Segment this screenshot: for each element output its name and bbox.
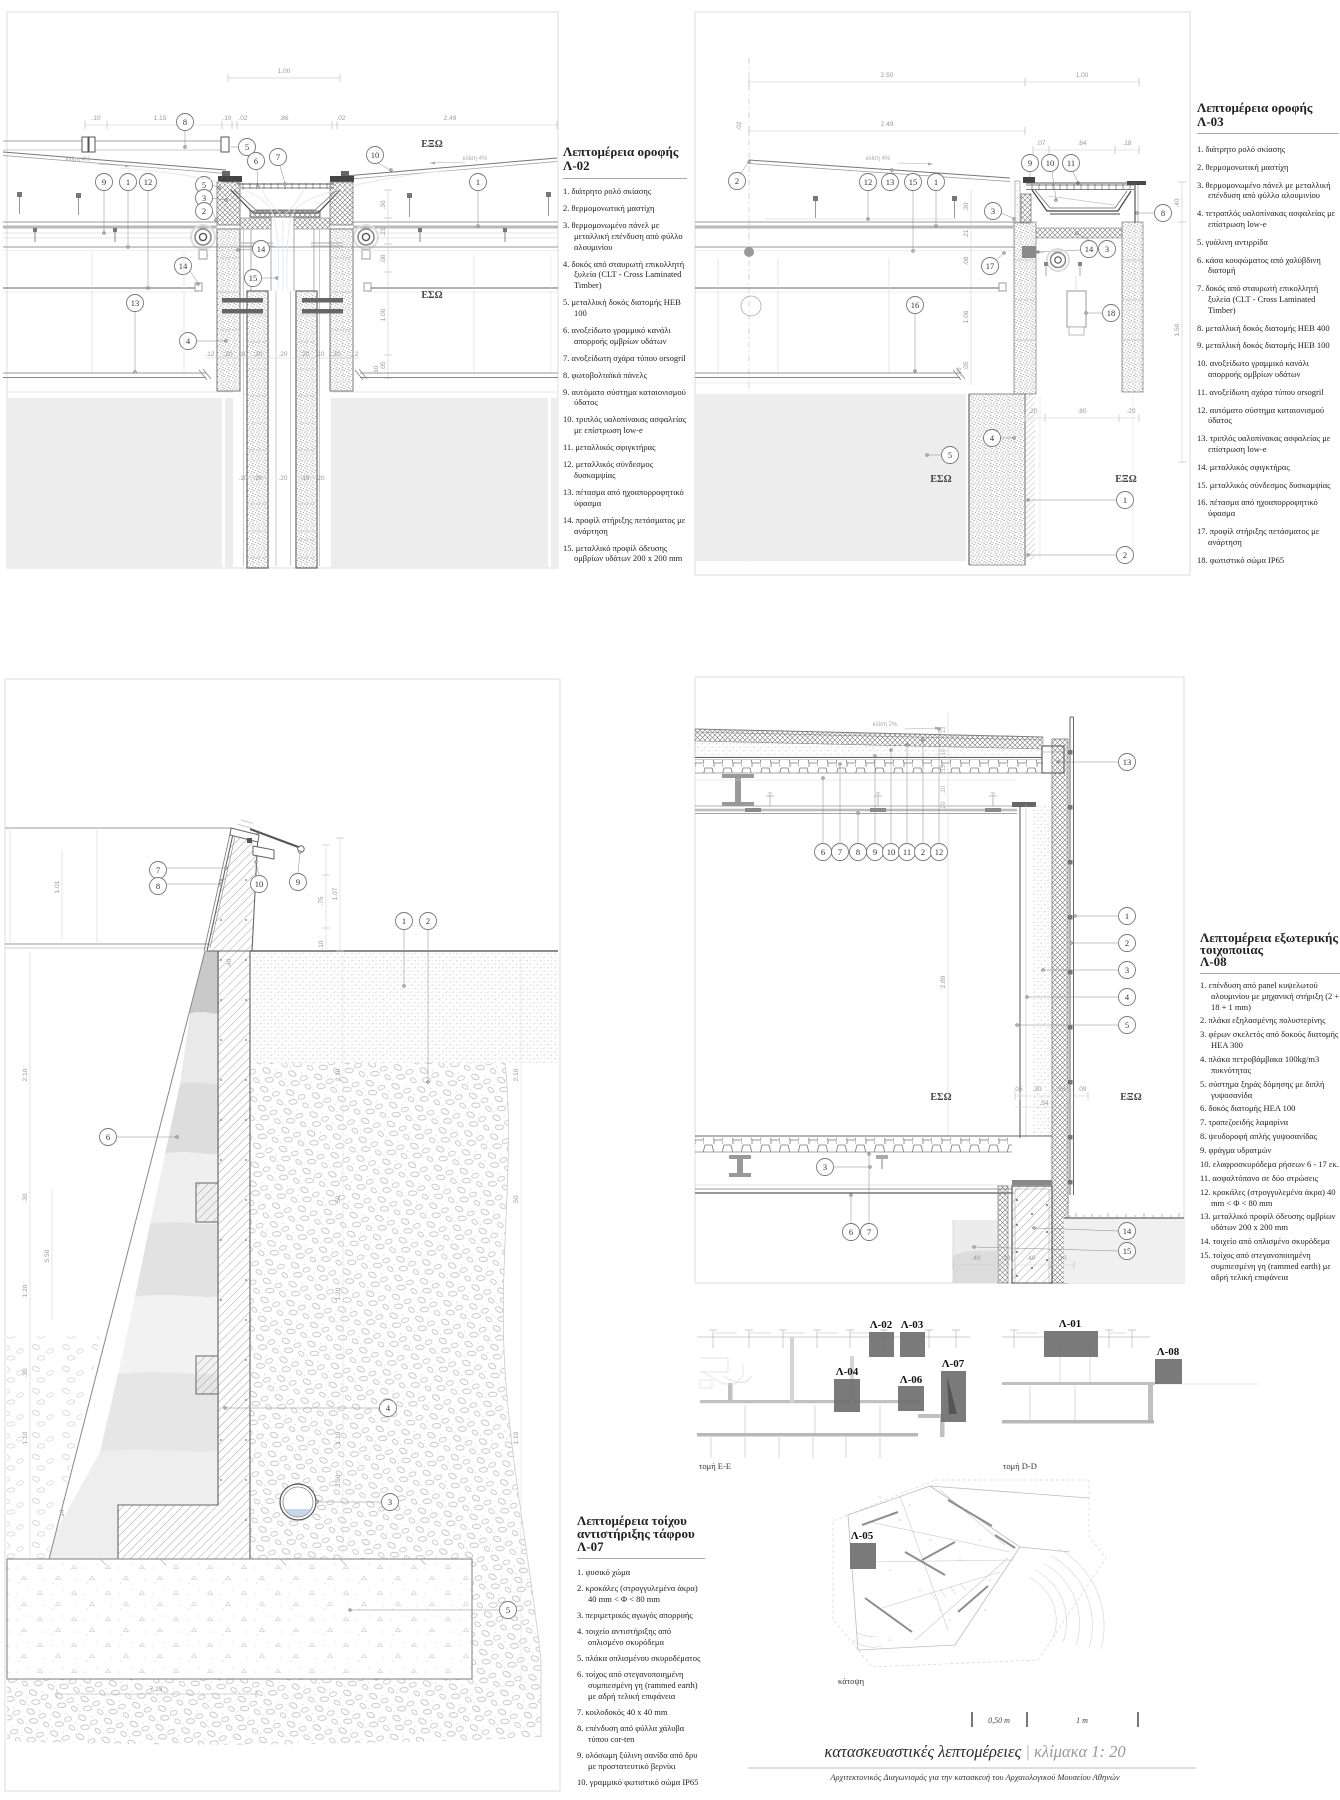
svg-text:13: 13 xyxy=(886,177,895,187)
svg-text:1.50: 1.50 xyxy=(1174,323,1181,336)
svg-text:.30: .30 xyxy=(22,1193,29,1202)
svg-text:9: 9 xyxy=(296,877,300,887)
svg-text:9: 9 xyxy=(102,177,106,187)
svg-text:.40: .40 xyxy=(1174,198,1181,207)
svg-text:15: 15 xyxy=(249,273,258,283)
svg-text:.75: .75 xyxy=(318,896,325,905)
svg-text:Λ-07: Λ-07 xyxy=(942,1358,965,1370)
svg-text:Λ-02: Λ-02 xyxy=(870,1319,893,1331)
svg-text:.07: .07 xyxy=(1036,140,1045,147)
svg-text:1.06: 1.06 xyxy=(380,308,387,321)
svg-text:12: 12 xyxy=(935,847,944,857)
svg-text:.20: .20 xyxy=(1126,408,1135,415)
svg-text:.20: .20 xyxy=(253,475,262,482)
svg-text:1.06: 1.06 xyxy=(963,310,970,323)
svg-text:ΕΞΩ: ΕΞΩ xyxy=(1115,474,1136,485)
svg-text:Λ-04: Λ-04 xyxy=(836,1366,859,1378)
svg-text:κλίση 2%: κλίση 2% xyxy=(873,722,898,728)
svg-text:.20: .20 xyxy=(1028,408,1037,415)
svg-text:12: 12 xyxy=(144,177,153,187)
svg-text:6: 6 xyxy=(849,1227,853,1237)
svg-text:.02: .02 xyxy=(336,115,345,122)
svg-text:.86: .86 xyxy=(279,115,288,122)
svg-text:κλίση 4%: κλίση 4% xyxy=(866,156,891,162)
svg-text:0,50 m: 0,50 m xyxy=(988,1716,1010,1725)
svg-text:2.49: 2.49 xyxy=(881,121,894,128)
svg-text:.21: .21 xyxy=(380,227,387,236)
svg-text:1.00: 1.00 xyxy=(1076,72,1089,79)
svg-text:.12: .12 xyxy=(349,351,358,358)
svg-text:18: 18 xyxy=(1107,308,1116,318)
svg-text:15: 15 xyxy=(1123,1246,1132,1256)
svg-text:9: 9 xyxy=(873,847,877,857)
svg-text:3: 3 xyxy=(1125,965,1129,975)
svg-text:.50: .50 xyxy=(513,1195,520,1204)
svg-text:.20: .20 xyxy=(223,351,232,358)
svg-text:.10: .10 xyxy=(222,115,231,122)
svg-text:1.20: 1.20 xyxy=(22,1284,29,1297)
svg-text:.30: .30 xyxy=(380,200,387,209)
svg-text:.20: .20 xyxy=(278,475,287,482)
svg-text:.21: .21 xyxy=(963,229,970,238)
svg-text:.20: .20 xyxy=(300,351,309,358)
svg-text:.20: .20 xyxy=(278,351,287,358)
svg-text:2.89: 2.89 xyxy=(940,975,947,988)
svg-text:7: 7 xyxy=(867,1227,871,1237)
svg-text:14: 14 xyxy=(257,244,266,254)
svg-text:.10: .10 xyxy=(1056,1086,1065,1093)
svg-text:14: 14 xyxy=(1085,244,1094,254)
svg-text:.02: .02 xyxy=(238,115,247,122)
svg-text:2.50: 2.50 xyxy=(881,72,894,79)
svg-text:14: 14 xyxy=(179,261,188,271)
svg-text:3.60: 3.60 xyxy=(335,1474,342,1487)
svg-text:2.10: 2.10 xyxy=(513,1068,520,1081)
svg-text:.80: .80 xyxy=(1077,408,1086,415)
svg-text:2: 2 xyxy=(1123,550,1127,560)
svg-text:τομή D-D: τομή D-D xyxy=(1003,1461,1037,1471)
svg-text:6: 6 xyxy=(821,847,825,857)
svg-text:Λ-08: Λ-08 xyxy=(1157,1346,1180,1358)
svg-text:10: 10 xyxy=(255,879,264,889)
svg-text:2: 2 xyxy=(1125,938,1129,948)
svg-text:.10: .10 xyxy=(318,940,325,949)
svg-text:.50: .50 xyxy=(335,1195,342,1204)
svg-text:5.50: 5.50 xyxy=(44,1249,51,1262)
svg-text:6: 6 xyxy=(254,156,258,166)
svg-text:10: 10 xyxy=(887,847,896,857)
svg-text:.30: .30 xyxy=(963,202,970,211)
svg-text:1: 1 xyxy=(934,177,938,187)
svg-text:.02: .02 xyxy=(736,121,743,130)
svg-text:.20: .20 xyxy=(315,475,324,482)
svg-text:5: 5 xyxy=(506,1605,510,1615)
svg-text:ΕΣΩ: ΕΣΩ xyxy=(930,1092,951,1103)
svg-text:.20: .20 xyxy=(253,351,262,358)
svg-text:κάτοψη: κάτοψη xyxy=(838,1676,864,1686)
svg-text:3: 3 xyxy=(991,206,995,216)
svg-text:1: 1 xyxy=(476,177,480,187)
svg-text:11: 11 xyxy=(1067,158,1075,168)
svg-text:7: 7 xyxy=(276,152,280,162)
svg-text:3: 3 xyxy=(1105,244,1109,254)
svg-text:.40: .40 xyxy=(971,1255,980,1262)
svg-text:.20: .20 xyxy=(331,351,340,358)
svg-text:.30: .30 xyxy=(1032,1086,1041,1093)
svg-text:3: 3 xyxy=(202,193,206,203)
svg-text:7.25: 7.25 xyxy=(150,1686,163,1693)
svg-text:.05: .05 xyxy=(380,361,387,370)
svg-text:9: 9 xyxy=(1028,158,1032,168)
svg-text:1: 1 xyxy=(1123,495,1127,505)
svg-text:.08: .08 xyxy=(963,256,970,265)
svg-text:1.10: 1.10 xyxy=(513,1431,520,1444)
svg-text:.84: .84 xyxy=(1077,140,1086,147)
svg-text:.14: .14 xyxy=(59,1509,66,1518)
svg-text:.05: .05 xyxy=(1013,1086,1022,1093)
svg-text:7: 7 xyxy=(156,865,160,875)
svg-text:.18: .18 xyxy=(1122,140,1131,147)
svg-text:.09: .09 xyxy=(1077,1086,1086,1093)
svg-text:.10: .10 xyxy=(941,748,947,757)
svg-text:.10: .10 xyxy=(238,351,247,358)
svg-text:ΕΞΩ: ΕΞΩ xyxy=(421,139,442,150)
svg-text:.15: .15 xyxy=(941,764,947,773)
svg-text:2: 2 xyxy=(921,847,925,857)
svg-text:.13: .13 xyxy=(941,726,947,735)
svg-text:15: 15 xyxy=(909,177,918,187)
svg-text:11: 11 xyxy=(903,847,911,857)
svg-text:.08: .08 xyxy=(380,254,387,263)
svg-text:.40: .40 xyxy=(226,958,233,967)
svg-text:13: 13 xyxy=(1123,757,1132,767)
svg-text:κλίση 4%: κλίση 4% xyxy=(463,156,488,162)
svg-text:7: 7 xyxy=(838,847,842,857)
svg-text:.30: .30 xyxy=(22,1368,29,1377)
svg-text:3: 3 xyxy=(388,1497,392,1507)
svg-text:.12: .12 xyxy=(205,351,214,358)
svg-text:1.00: 1.00 xyxy=(278,68,291,75)
svg-text:Λ-01: Λ-01 xyxy=(1059,1318,1082,1330)
svg-text:.10: .10 xyxy=(238,475,247,482)
svg-text:8: 8 xyxy=(183,117,187,127)
svg-text:5: 5 xyxy=(948,450,952,460)
svg-text:.10: .10 xyxy=(941,785,947,794)
svg-text:1.20: 1.20 xyxy=(335,1287,342,1300)
svg-text:12: 12 xyxy=(864,177,873,187)
svg-text:5: 5 xyxy=(245,142,249,152)
svg-text:8: 8 xyxy=(856,847,860,857)
svg-text:2: 2 xyxy=(202,206,206,216)
svg-text:κλίση 4%: κλίση 4% xyxy=(66,157,91,163)
svg-text:ΕΣΩ: ΕΣΩ xyxy=(421,290,442,301)
svg-text:.05: .05 xyxy=(963,361,970,370)
svg-text:Λ-05: Λ-05 xyxy=(851,1530,874,1542)
svg-text:1 m: 1 m xyxy=(1076,1716,1088,1725)
svg-text:.20: .20 xyxy=(941,801,947,810)
svg-text:3: 3 xyxy=(823,1162,827,1172)
svg-text:1.01: 1.01 xyxy=(54,880,61,893)
svg-text:ΕΣΩ: ΕΣΩ xyxy=(930,474,951,485)
svg-text:1.10: 1.10 xyxy=(335,1431,342,1444)
svg-text:.10: .10 xyxy=(300,475,309,482)
svg-text:2: 2 xyxy=(426,916,430,926)
svg-text:1.07: 1.07 xyxy=(332,887,339,900)
svg-text:2.49: 2.49 xyxy=(444,115,457,122)
svg-text:Λ-06: Λ-06 xyxy=(900,1374,923,1386)
svg-text:Λ-03: Λ-03 xyxy=(901,1319,924,1331)
svg-text:1: 1 xyxy=(126,177,130,187)
svg-text:τομή Ε-Ε: τομή Ε-Ε xyxy=(699,1461,731,1471)
svg-text:.10: .10 xyxy=(315,351,324,358)
svg-text:13: 13 xyxy=(131,298,140,308)
svg-text:.40: .40 xyxy=(1026,1255,1035,1262)
svg-text:10: 10 xyxy=(1046,158,1055,168)
svg-text:1.15: 1.15 xyxy=(154,115,167,122)
svg-text:8: 8 xyxy=(1161,208,1165,218)
svg-text:16: 16 xyxy=(911,300,920,310)
svg-text:ΕΞΩ: ΕΞΩ xyxy=(1120,1092,1141,1103)
svg-text:17: 17 xyxy=(986,261,995,271)
svg-text:5: 5 xyxy=(202,180,206,190)
svg-text:2.10: 2.10 xyxy=(335,1068,342,1081)
svg-text:8: 8 xyxy=(156,881,160,891)
svg-text:.10: .10 xyxy=(91,115,100,122)
svg-text:2: 2 xyxy=(735,176,739,186)
svg-text:14: 14 xyxy=(1123,1226,1132,1236)
svg-text:6: 6 xyxy=(106,1132,110,1142)
svg-text:10: 10 xyxy=(371,150,380,160)
svg-text:1: 1 xyxy=(402,916,406,926)
svg-text:1: 1 xyxy=(1125,911,1129,921)
svg-text:.54: .54 xyxy=(1039,1100,1048,1107)
svg-text:2.10: 2.10 xyxy=(22,1068,29,1081)
svg-text:5: 5 xyxy=(1125,1020,1129,1030)
svg-text:.10: .10 xyxy=(1057,1255,1066,1262)
svg-text:.10: .10 xyxy=(1001,1255,1010,1262)
svg-text:1.10: 1.10 xyxy=(22,1431,29,1444)
